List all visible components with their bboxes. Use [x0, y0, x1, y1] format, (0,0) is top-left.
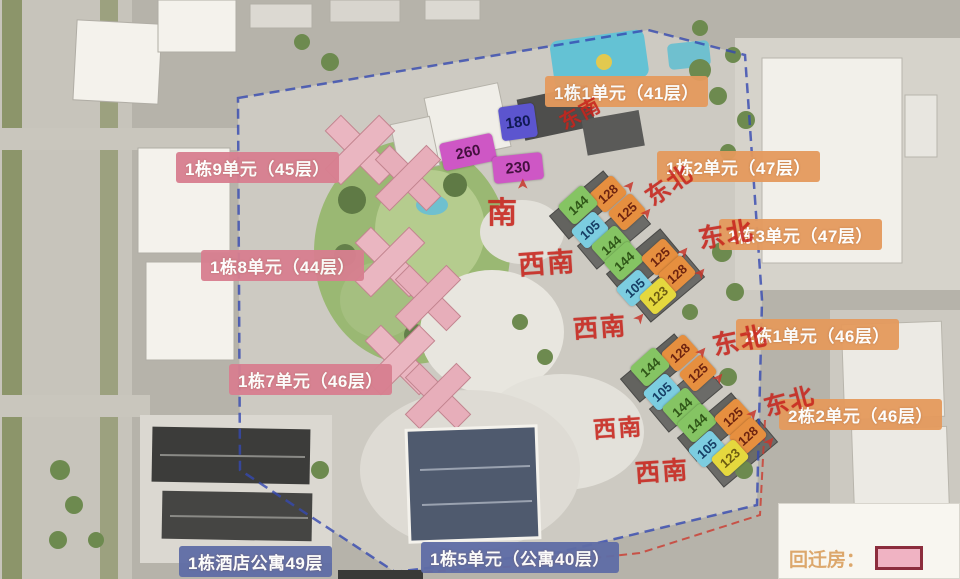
- building-footprint: [146, 262, 234, 360]
- building-footprint: [841, 321, 944, 419]
- tree-strip: [2, 0, 22, 579]
- site-map-artwork: [0, 0, 960, 579]
- building-footprint: [73, 20, 162, 104]
- tree: [334, 244, 356, 266]
- legend: 回迁房：: [778, 503, 960, 579]
- tree: [443, 173, 467, 197]
- building-footprint: [762, 58, 902, 263]
- road-top-left: [0, 128, 245, 150]
- building-footprint: [330, 0, 400, 22]
- building-footprint: [905, 95, 937, 157]
- building-footprint: [425, 0, 480, 20]
- plaza: [480, 200, 564, 264]
- building-footprint: [852, 426, 950, 511]
- building-footprint: [158, 0, 236, 52]
- tree: [338, 186, 366, 214]
- playground: [596, 54, 612, 70]
- bottom-edge-artifact: [338, 570, 423, 579]
- legend-title: 回迁房：: [789, 545, 865, 572]
- building-footprint: [138, 148, 230, 253]
- road-mid-left: [0, 395, 150, 417]
- site-plan: 1802602301281251441051441441251281051231…: [0, 0, 960, 579]
- apartment-tower: [406, 426, 540, 542]
- building-footprint: [250, 4, 312, 28]
- legend-swatch: [875, 546, 923, 570]
